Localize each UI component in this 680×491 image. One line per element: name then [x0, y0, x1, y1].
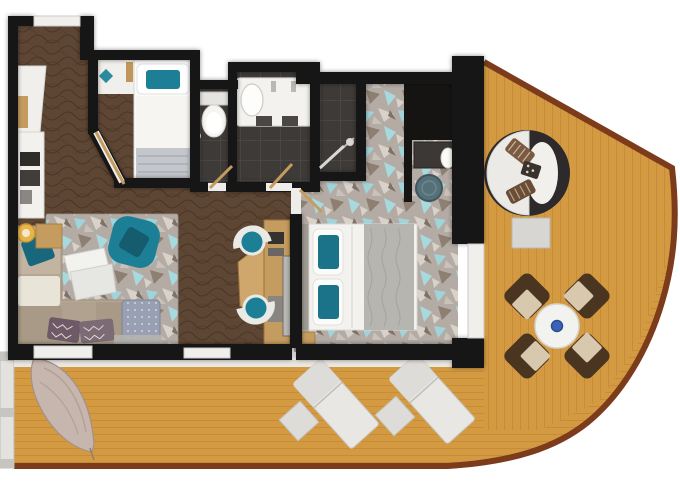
bedroom-door-threshold [291, 188, 301, 214]
console-item [268, 248, 284, 256]
entry-hall-furniture [18, 66, 46, 218]
window-sill-strip [14, 360, 456, 367]
minibar-item [20, 170, 40, 186]
single-bed-teal-pillow [146, 70, 180, 89]
single-bed-duvet [136, 96, 190, 148]
tv [283, 256, 291, 336]
basin [241, 84, 263, 116]
balcony-window-living [184, 348, 230, 358]
bed-teal-pillow [318, 285, 339, 319]
vanity-wall-stub [404, 140, 412, 202]
doormat [114, 335, 162, 344]
closet-wood-panel [18, 96, 28, 128]
bed-teal-pillow [318, 235, 339, 269]
sofa-white-throw [18, 276, 60, 306]
minibar-item [20, 190, 32, 204]
balcony-door-bedroom [468, 244, 484, 338]
single-bed-blanket [136, 148, 190, 182]
side-table [36, 224, 62, 248]
entry-door [34, 16, 80, 26]
vanity-shaft-block [404, 80, 458, 140]
railing-post [0, 408, 14, 417]
vanity-pouf [416, 175, 442, 201]
foot-bench [302, 332, 315, 344]
balcony-door-living [34, 346, 92, 358]
toilet-tank [198, 92, 232, 105]
table-centerpiece [552, 321, 563, 332]
single-bed [134, 60, 192, 186]
minibar-item [20, 152, 40, 166]
faucet [271, 81, 276, 92]
under-counter-storage [282, 116, 298, 126]
faucet [291, 81, 296, 92]
floor-plan-page [0, 0, 680, 491]
railing-post [0, 459, 14, 468]
sofa-patterned-pillow [79, 318, 115, 343]
shelf-item [126, 62, 133, 82]
floor-plan-svg [0, 0, 680, 491]
round-daybed [484, 130, 570, 216]
bathroom-furniture [236, 78, 316, 126]
shower-head [346, 138, 354, 146]
sofa-patterned-pillow [47, 317, 82, 343]
daybed-side-table [512, 218, 550, 248]
under-counter-storage [256, 116, 272, 126]
